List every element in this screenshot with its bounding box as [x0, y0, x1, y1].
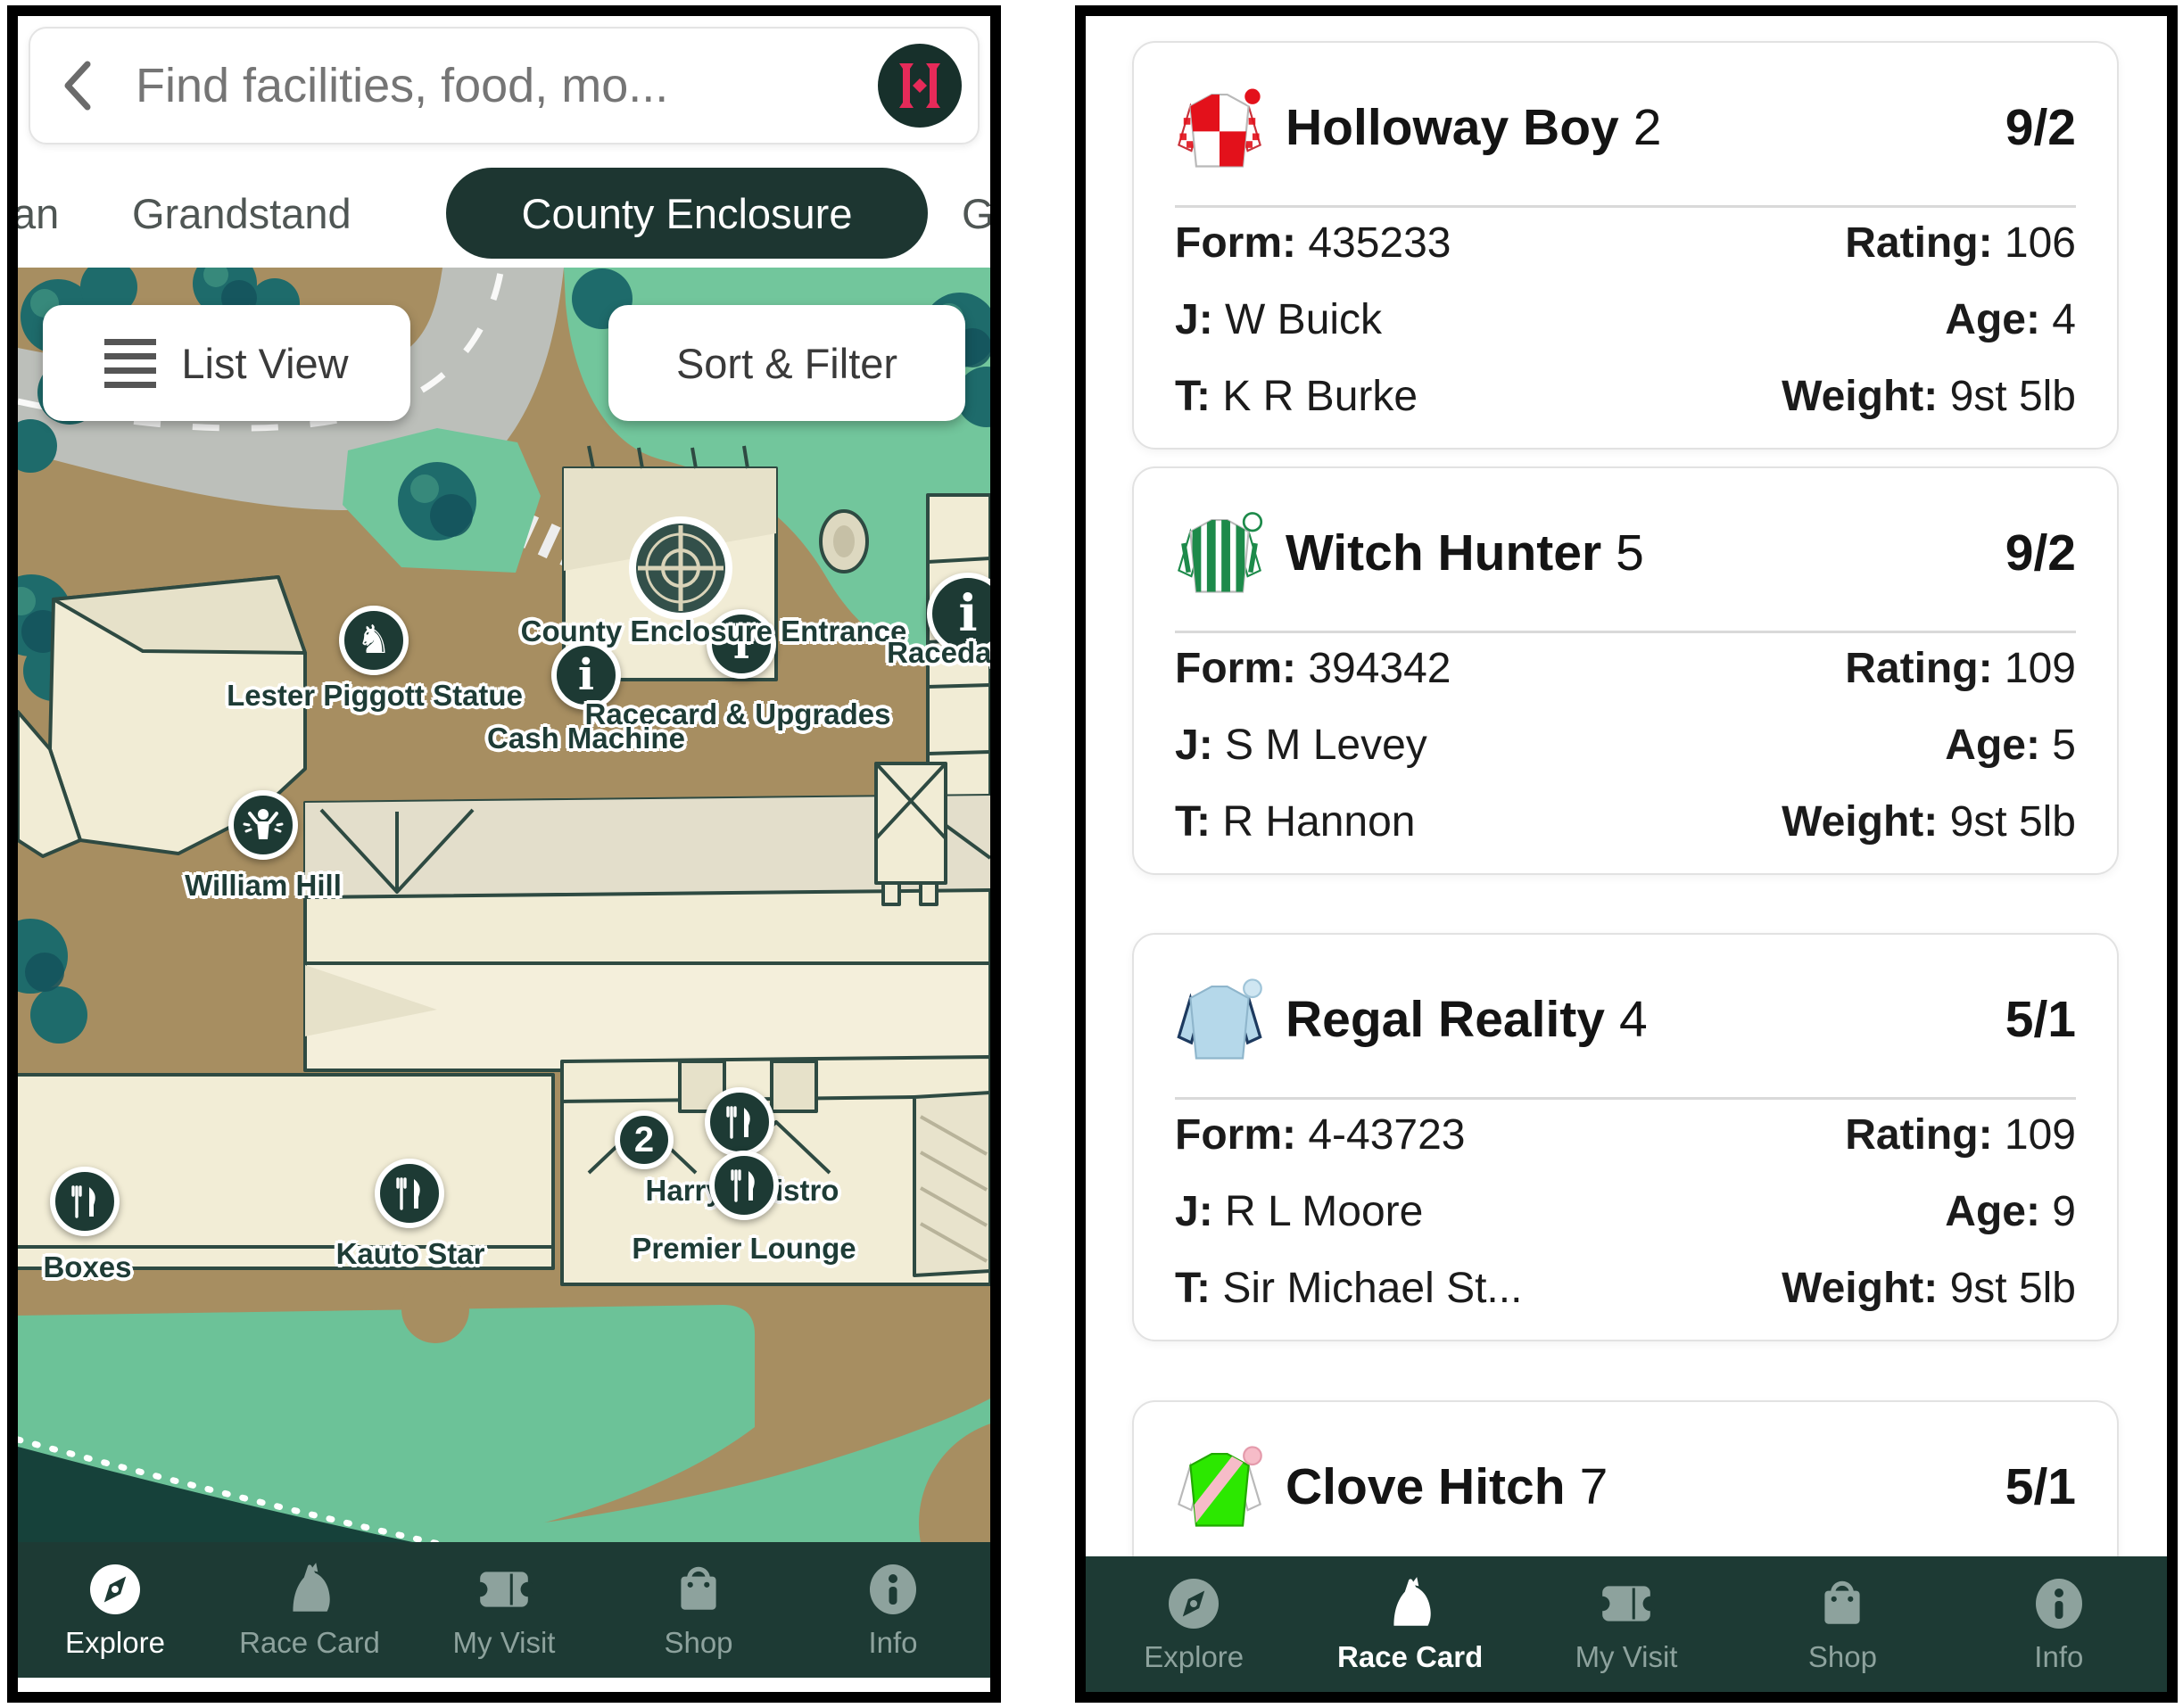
- horse-name: Regal Reality: [1286, 990, 1605, 1049]
- form-field: Form: 435233: [1175, 219, 1451, 268]
- horse-odds: 9/2: [2005, 98, 2076, 157]
- cluster-count-badge[interactable]: 2: [615, 1110, 674, 1169]
- horse-odds: 5/1: [2005, 1457, 2076, 1516]
- back-chevron-icon[interactable]: [62, 61, 93, 111]
- label-raceday: Raceday: [887, 636, 990, 670]
- horse-name: Clove Hitch: [1286, 1457, 1566, 1516]
- silk-icon-light-blue: [1175, 977, 1264, 1062]
- map-artwork: [18, 268, 990, 1574]
- horse-name: Holloway Boy: [1286, 98, 1619, 157]
- nav-race-card[interactable]: Race Card: [212, 1542, 407, 1678]
- person-celebrating-icon: [243, 804, 284, 846]
- enclosure-tabs: an Grandstand County Enclosure G: [18, 166, 990, 266]
- label-premier-lounge: Premier Lounge: [632, 1232, 856, 1266]
- nav-shop[interactable]: Shop: [601, 1542, 796, 1678]
- william-hill-marker[interactable]: [228, 790, 298, 860]
- trainer-field: T: Sir Michael St...: [1175, 1264, 1522, 1313]
- info-icon: i: [578, 654, 594, 697]
- rating-field: Rating: 109: [1845, 1110, 2076, 1159]
- horse-name: Witch Hunter: [1286, 524, 1601, 582]
- horse-odds: 9/2: [2005, 524, 2076, 582]
- fork-knife-icon: [391, 1175, 428, 1212]
- horse-number: 2: [1633, 98, 1662, 157]
- ticket-icon: [475, 1560, 533, 1619]
- bottom-nav: Explore Race Card My Visit: [1086, 1556, 2167, 1692]
- list-view-label: List View: [181, 339, 348, 388]
- horse-card[interactable]: Holloway Boy 2 9/2 Form: 435233 Rating: …: [1132, 41, 2119, 450]
- horse-odds: 5/1: [2005, 990, 2076, 1049]
- weight-field: Weight: 9st 5lb: [1782, 1264, 2076, 1313]
- nav-explore[interactable]: Explore: [1086, 1556, 1302, 1692]
- two-phone-screenshots: an Grandstand County Enclosure G: [0, 0, 2183, 1708]
- sort-filter-button[interactable]: Sort & Filter: [608, 305, 965, 421]
- kauto-star-dining-marker[interactable]: [375, 1159, 444, 1228]
- label-lester-piggott-statue: Lester Piggott Statue: [227, 679, 523, 713]
- fork-knife-icon: [721, 1103, 758, 1141]
- tab-grandstand[interactable]: Grandstand: [132, 189, 351, 238]
- ticket-icon: [1597, 1574, 1656, 1633]
- bistro-dining-marker-2[interactable]: [709, 1151, 779, 1220]
- racecourse-logo-icon: [878, 44, 962, 128]
- horse-number: 7: [1580, 1457, 1608, 1516]
- venue-map[interactable]: List View Sort & Filter ♞ i i i: [18, 268, 990, 1574]
- badge-count: 2: [634, 1120, 654, 1160]
- info-icon: i: [958, 589, 977, 639]
- card-divider: [1175, 1097, 2076, 1100]
- horse-head-icon: [1381, 1574, 1440, 1633]
- nav-my-visit[interactable]: My Visit: [1518, 1556, 1734, 1692]
- search-bar[interactable]: [29, 27, 980, 144]
- silk-icon-green-pink-sash: [1175, 1444, 1264, 1530]
- jockey-field: J: W Buick: [1175, 295, 1382, 344]
- nav-race-card[interactable]: Race Card: [1302, 1556, 1517, 1692]
- shopping-bag-icon: [669, 1560, 728, 1619]
- nav-explore[interactable]: Explore: [18, 1542, 212, 1678]
- horse-head-icon: [280, 1560, 339, 1619]
- nav-my-visit[interactable]: My Visit: [407, 1542, 601, 1678]
- list-icon: [104, 339, 156, 388]
- home-strip: [18, 1678, 990, 1692]
- label-boxes: Boxes: [43, 1250, 131, 1284]
- phone-racecard-screen: Holloway Boy 2 9/2 Form: 435233 Rating: …: [1075, 5, 2178, 1703]
- label-cash-machine: Cash Machine: [487, 722, 685, 755]
- jockey-field: J: R L Moore: [1175, 1187, 1423, 1236]
- phone-map-screen: an Grandstand County Enclosure G: [7, 5, 1001, 1703]
- age-field: Age: 9: [1945, 1187, 2076, 1236]
- rosette-window-icon: [633, 520, 729, 616]
- card-divider: [1175, 631, 2076, 633]
- trainer-field: T: R Hannon: [1175, 797, 1415, 846]
- horse-card[interactable]: Witch Hunter 5 9/2 Form: 394342 Rating: …: [1132, 466, 2119, 875]
- nav-info[interactable]: Info: [796, 1542, 990, 1678]
- search-input[interactable]: [134, 57, 878, 114]
- compass-icon: [1164, 1574, 1223, 1633]
- info-icon: [2030, 1574, 2088, 1633]
- age-field: Age: 5: [1945, 721, 2076, 770]
- list-view-button[interactable]: List View: [43, 305, 410, 421]
- boxes-dining-marker[interactable]: [50, 1167, 120, 1236]
- form-field: Form: 394342: [1175, 644, 1451, 693]
- form-field: Form: 4-43723: [1175, 1110, 1465, 1159]
- compass-icon: [86, 1560, 145, 1619]
- sort-filter-label: Sort & Filter: [676, 339, 897, 388]
- weight-field: Weight: 9st 5lb: [1782, 797, 2076, 846]
- jockey-field: J: S M Levey: [1175, 721, 1427, 770]
- rating-field: Rating: 106: [1845, 219, 2076, 268]
- weight-field: Weight: 9st 5lb: [1782, 372, 2076, 421]
- tab-partial-right[interactable]: G: [962, 189, 995, 238]
- trainer-field: T: K R Burke: [1175, 372, 1418, 421]
- fork-knife-icon: [725, 1167, 763, 1204]
- label-county-enclosure-entrance: County Enclosure Entrance: [521, 615, 907, 648]
- rating-field: Rating: 109: [1845, 644, 2076, 693]
- label-kauto-star: Kauto Star: [336, 1237, 485, 1271]
- lester-piggott-statue-marker[interactable]: ♞: [339, 606, 409, 675]
- horse-number: 5: [1616, 524, 1644, 582]
- card-divider: [1175, 205, 2076, 208]
- tab-partial-left[interactable]: an: [12, 189, 59, 238]
- tab-county-enclosure-selected[interactable]: County Enclosure: [446, 168, 928, 259]
- silk-icon-green-white-stripes: [1175, 510, 1264, 596]
- shopping-bag-icon: [1813, 1574, 1872, 1633]
- info-icon: [864, 1560, 922, 1619]
- horse-number: 4: [1619, 990, 1648, 1049]
- horse-statue-icon: ♞: [356, 621, 391, 660]
- label-william-hill: William Hill: [185, 869, 342, 903]
- fork-knife-icon: [66, 1183, 103, 1220]
- silk-icon-red-white-check: [1175, 85, 1264, 170]
- bottom-nav: Explore Race Card My Visit: [18, 1542, 990, 1678]
- bistro-dining-marker-1[interactable]: [705, 1087, 774, 1157]
- horse-card[interactable]: Regal Reality 4 5/1 Form: 4-43723 Rating…: [1132, 933, 2119, 1341]
- nav-info[interactable]: Info: [1951, 1556, 2167, 1692]
- nav-shop[interactable]: Shop: [1734, 1556, 1950, 1692]
- age-field: Age: 4: [1945, 295, 2076, 344]
